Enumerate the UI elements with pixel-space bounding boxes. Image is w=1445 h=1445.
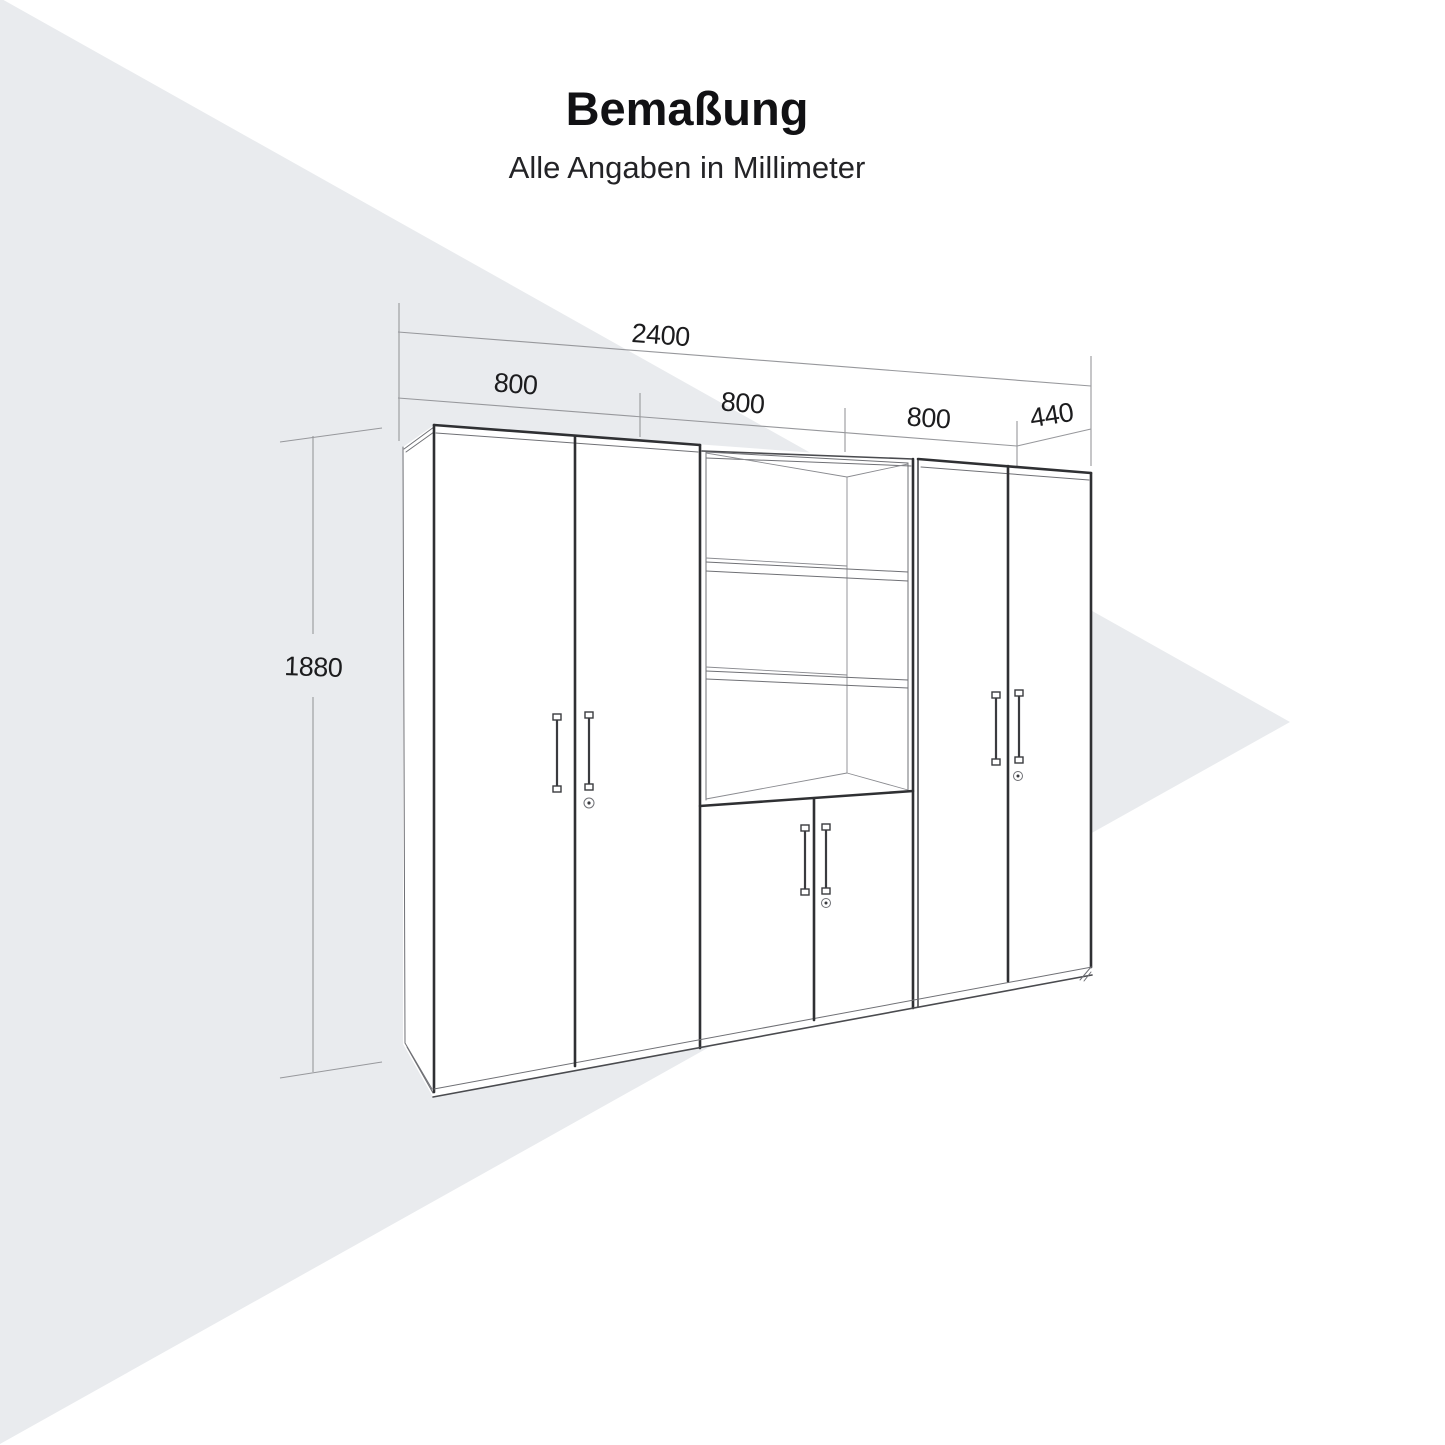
dimension-label-depth: 440 <box>1028 397 1076 433</box>
cabinet-body <box>403 425 1091 1097</box>
title-block: Bemaßung Alle Angaben in Millimeter <box>509 82 866 185</box>
dimension-label-section-1: 800 <box>493 367 539 400</box>
dimension-diagram-page: Bemaßung Alle Angaben in Millimeter 2400… <box>0 0 1445 1445</box>
dimension-label-total-width: 2400 <box>631 318 691 352</box>
dimension-line-440 <box>1017 429 1091 446</box>
dimension-label-section-3: 800 <box>906 402 952 435</box>
dimension-depth: 440 <box>1017 397 1091 446</box>
dimension-label-height: 1880 <box>284 651 343 683</box>
page-title: Bemaßung <box>566 82 809 135</box>
dimension-drawing: Bemaßung Alle Angaben in Millimeter 2400… <box>0 0 1445 1445</box>
page-subtitle: Alle Angaben in Millimeter <box>509 150 866 185</box>
cabinet-drawing <box>403 425 1092 1097</box>
dimension-label-section-2: 800 <box>720 386 766 419</box>
